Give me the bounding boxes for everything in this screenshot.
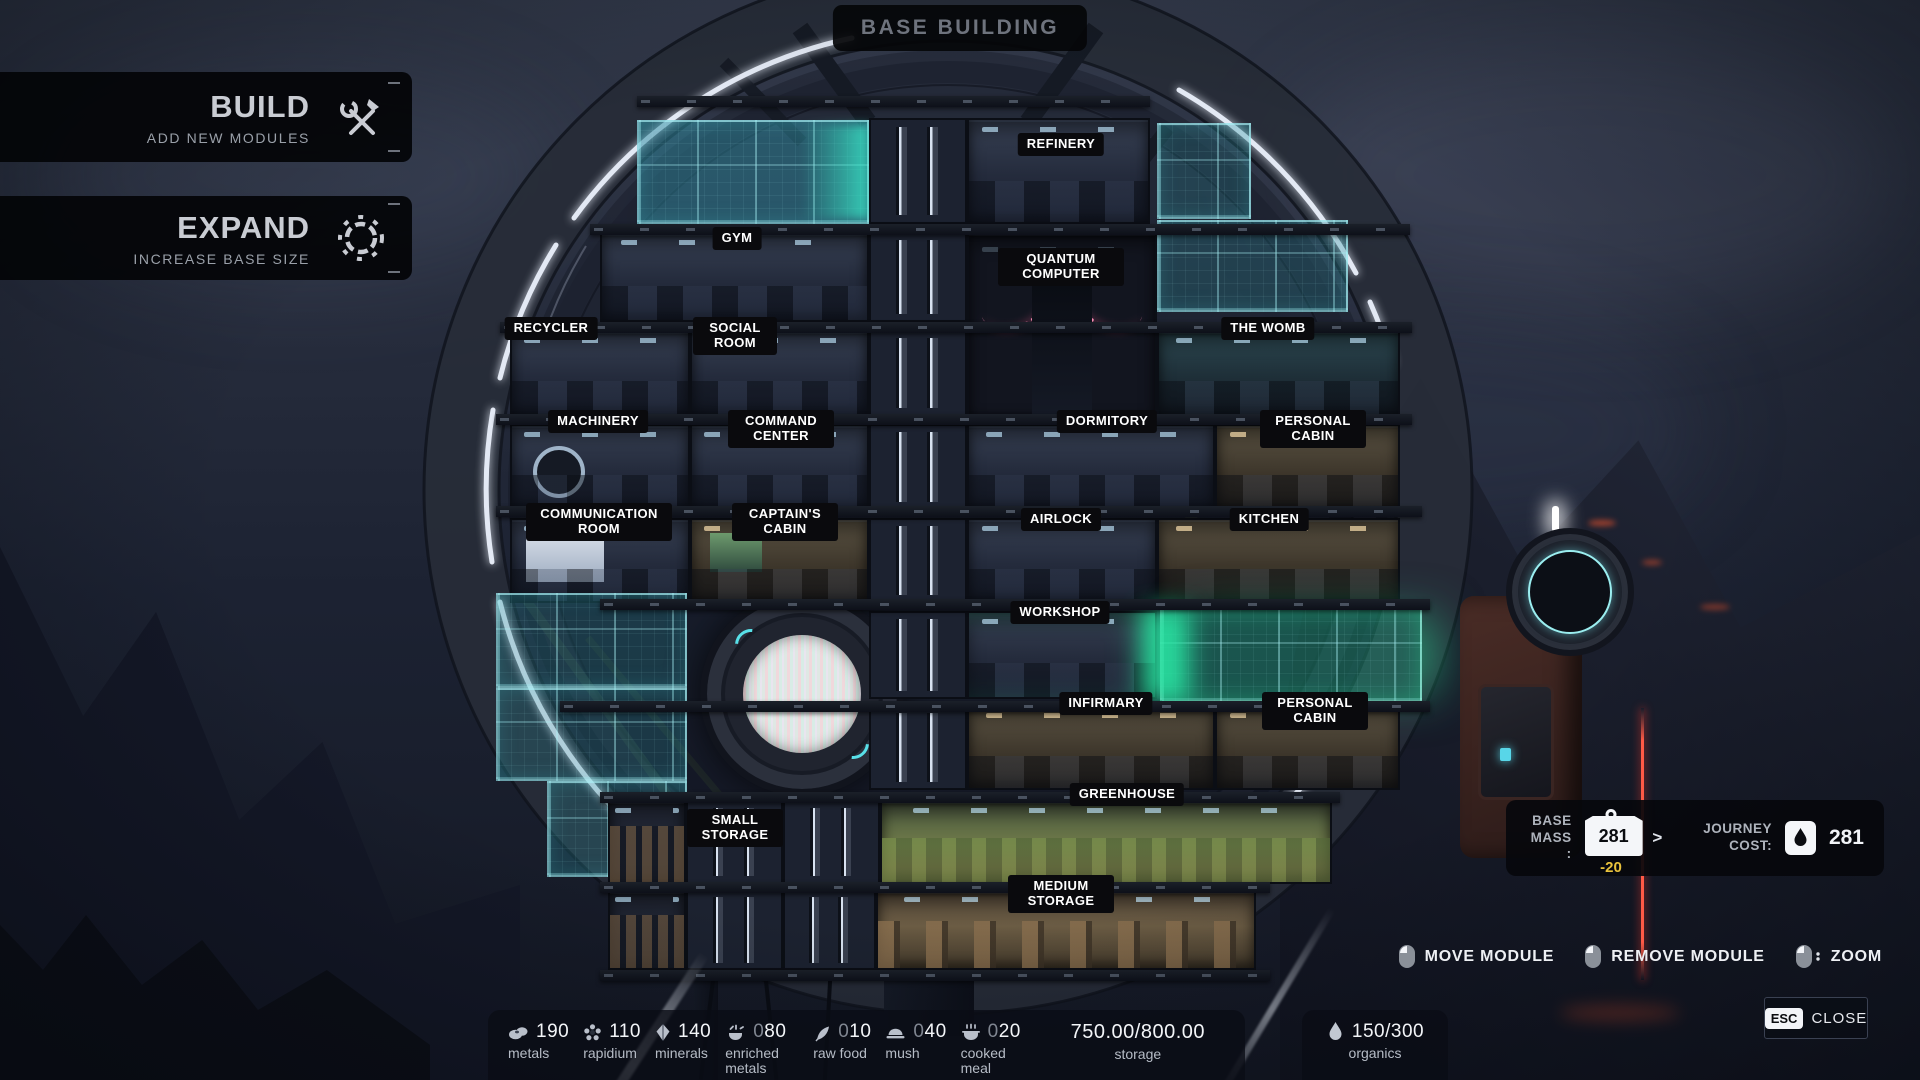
module-room-greenhouse[interactable] [880,800,1332,884]
metals-icon [508,1025,529,1040]
organics-value: 150/300 [1352,1021,1424,1043]
chevron-right-icon: > [1652,828,1662,848]
journey-cost-label: JOURNEY COST: [1703,821,1772,855]
rover-light [1500,748,1511,761]
elevator-shaft [869,611,967,699]
elevator-shaft [869,330,967,416]
base-mass-label: BASE MASS : [1526,813,1572,864]
module-label-greenhouse: GREENHOUSE [1070,783,1184,806]
resource-value: 040 [913,1021,946,1043]
hint-zoom: ZOOM [1795,944,1882,969]
module-room-infirmary[interactable] [967,705,1215,790]
module-label-infirmary: INFIRMARY [1059,692,1152,715]
module-label-social-room: SOCIAL ROOM [693,317,777,355]
module-label-machinery: MACHINERY [548,410,648,433]
resource-rapidium: 110rapidium [583,1021,641,1080]
build-slot[interactable] [1157,123,1251,219]
resource-enriched-metals: 080enriched metals [725,1021,799,1080]
resource-label: mush [885,1046,946,1061]
elevator-shaft [869,232,967,322]
hint-label: MOVE MODULE [1425,948,1555,966]
hint-remove-module: REMOVE MODULE [1584,944,1765,969]
rover-lens [1528,550,1612,634]
organics-readout: 150/300 organics [1302,1010,1448,1080]
module-room-recycler[interactable] [510,330,690,416]
elevator-shaft [869,424,967,510]
hint-label: ZOOM [1831,948,1882,966]
mass-delta: -20 [1585,859,1638,876]
module-label-quantum-computer: QUANTUM COMPUTER [998,248,1124,286]
expand-subtitle: INCREASE BASE SIZE [133,251,310,267]
weight-icon: 281 -20 [1585,809,1638,861]
resource-label: minerals [655,1046,711,1061]
droplet-icon [1326,1021,1345,1043]
expand-title: EXPAND [133,210,310,246]
resource-value: 080 [753,1021,786,1043]
hint-label: REMOVE MODULE [1611,948,1765,966]
module-room-small-storage[interactable] [608,890,686,970]
module-room-the-womb[interactable] [1157,330,1400,416]
storage-value: 750.00/800.00 [1071,1021,1205,1044]
esc-key-badge: ESC [1765,1008,1804,1029]
elevator-shaft [869,518,967,603]
resource-value: 140 [678,1021,711,1043]
base-building-screen: REFINERYGYMQUANTUM COMPUTERRECYCLERSOCIA… [0,0,1920,1080]
build-button[interactable]: BUILD ADD NEW MODULES [0,72,412,162]
gear-icon [335,212,387,264]
elevator-shaft [869,705,967,790]
resource-label: enriched metals [725,1046,799,1076]
storage-label: storage [1114,1047,1161,1062]
module-label-the-womb: THE WOMB [1221,317,1314,340]
resource-mush: 040mush [885,1021,946,1080]
resource-value: 190 [536,1021,569,1043]
close-label: CLOSE [1811,1010,1867,1027]
module-label-airlock: AIRLOCK [1021,508,1101,531]
droplet-icon [1785,821,1816,855]
resource-label: metals [508,1046,569,1061]
mass-journey-panel: BASE MASS : 281 -20 > JOURNEY COST: 281 [1506,800,1884,876]
floor-slab [600,882,1270,893]
mouse-left-icon [1398,944,1416,969]
elevator-shaft [783,890,876,970]
minerals-icon [655,1023,671,1042]
module-label-refinery: REFINERY [1018,133,1104,156]
build-slot-highlighted[interactable] [1160,608,1422,702]
hint-move-module: MOVE MODULE [1398,944,1555,969]
resource-cooked-meal: 020cooked meal [961,1021,1035,1080]
resource-value: 020 [988,1021,1021,1043]
module-label-gym: GYM [713,227,762,250]
raw-food-icon [813,1023,831,1042]
floor-slab [637,96,1150,107]
module-label-dormitory: DORMITORY [1057,410,1157,433]
module-label-command-center: COMMAND CENTER [728,410,834,448]
storage-readout: 750.00/800.00 storage [1049,1021,1227,1080]
rover-panel [1478,684,1554,800]
floor-slab [600,792,1340,803]
resource-label: raw food [813,1046,871,1061]
module-label-personal-cabin-1: PERSONAL CABIN [1260,410,1366,448]
journey-cost-value: 281 [1829,826,1864,850]
page-title: BASE BUILDING [833,5,1087,51]
mouse-wheel-icon [1795,944,1822,969]
module-label-recycler: RECYCLER [505,317,598,340]
control-hints: MOVE MODULE REMOVE MODULE ZOOM [1398,944,1882,969]
rapidium-icon [583,1023,602,1042]
base-mass-value: 281 [1585,816,1643,856]
module-room-dormitory[interactable] [967,424,1215,510]
resource-minerals: 140minerals [655,1021,711,1080]
module-label-small-storage: SMALL STORAGE [687,809,783,847]
module-room-workshop[interactable] [967,611,1157,699]
module-room-small-storage[interactable] [608,800,686,884]
porthole [533,446,585,498]
module-label-workshop: WORKSHOP [1010,601,1109,624]
build-subtitle: ADD NEW MODULES [147,130,310,146]
mouse-right-icon [1584,944,1602,969]
build-title: BUILD [147,89,310,125]
resource-raw-food: 010raw food [813,1021,871,1080]
hammer-wrench-icon [337,93,385,141]
close-button[interactable]: ESC CLOSE [1764,997,1868,1039]
floor-slab [600,970,1270,981]
module-label-personal-cabin-2: PERSONAL CABIN [1262,692,1368,730]
elevator-shaft [783,800,880,884]
module-label-kitchen: KITCHEN [1230,508,1309,531]
resource-bar: 190metals110rapidium140minerals080enrich… [488,1010,1245,1080]
resource-metals: 190metals [508,1021,569,1080]
resource-value: 010 [838,1021,871,1043]
wall-screen [526,535,603,582]
organics-label: organics [1349,1046,1402,1061]
build-slot[interactable] [637,120,869,224]
enriched-metals-icon [725,1023,746,1042]
rover-turret [1506,528,1634,656]
cooked-meal-icon [961,1023,981,1042]
module-label-communication-room: COMMUNICATION ROOM [526,503,672,541]
module-label-captains-cabin: CAPTAIN'S CABIN [732,503,838,541]
resource-label: cooked meal [961,1046,1035,1076]
module-label-medium-storage: MEDIUM STORAGE [1008,875,1114,913]
expand-button[interactable]: EXPAND INCREASE BASE SIZE [0,196,412,280]
resource-label: rapidium [583,1046,641,1061]
resource-value: 110 [609,1021,641,1043]
module-room-machinery[interactable] [510,424,690,510]
mush-icon [885,1024,906,1040]
elevator-shaft [869,118,967,224]
